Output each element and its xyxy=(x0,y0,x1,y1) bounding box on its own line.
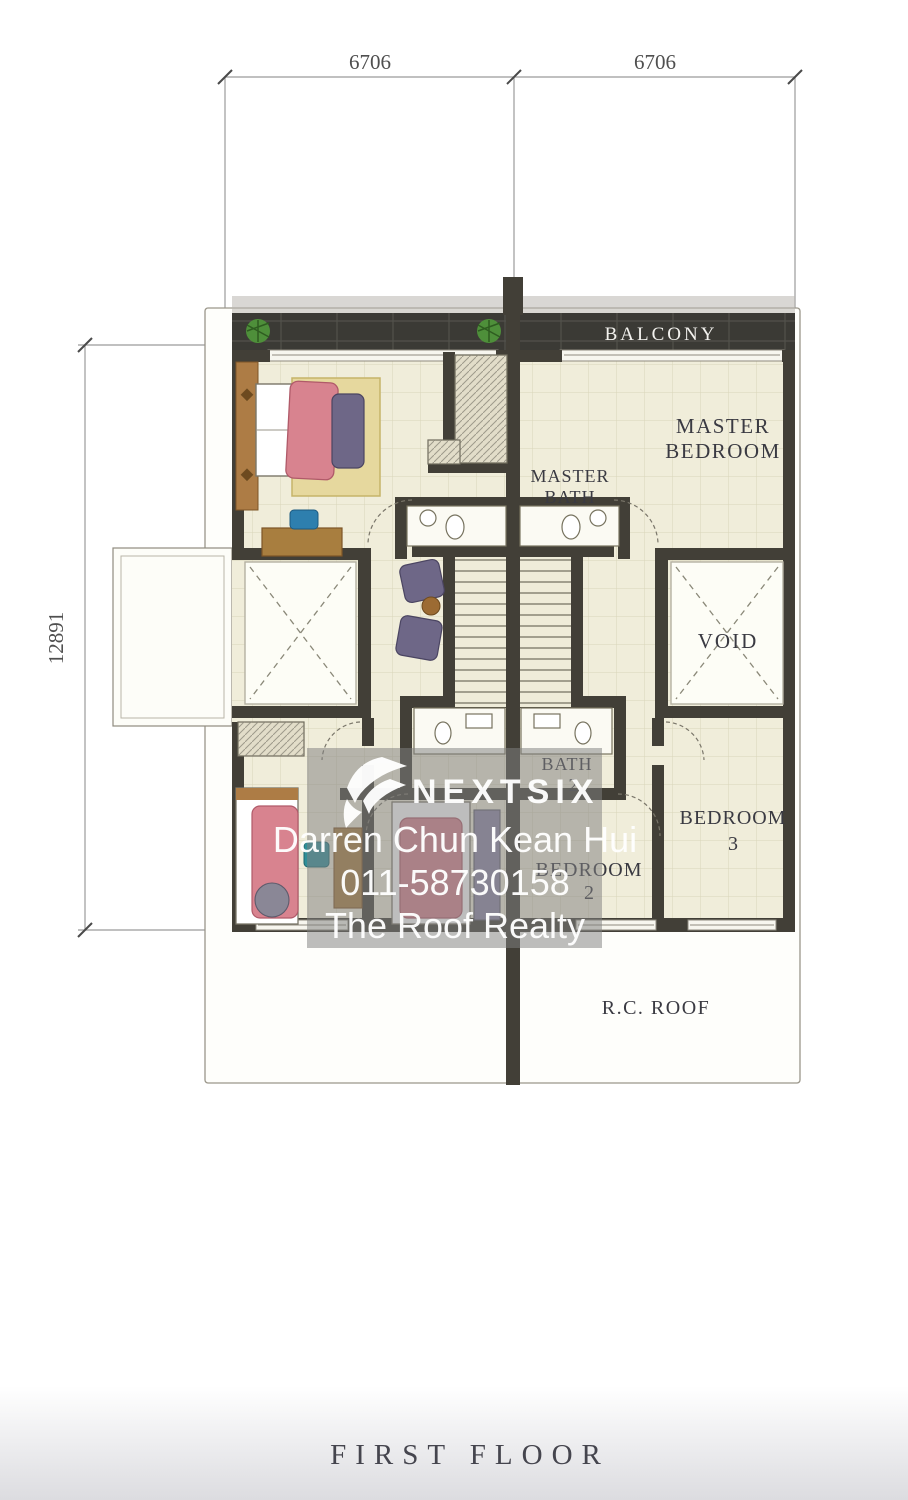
master-bath-label-line2: BATH xyxy=(544,487,595,507)
balcony-label: BALCONY xyxy=(605,324,718,345)
headboard xyxy=(236,362,258,510)
plan-title: FIRST FLOOR xyxy=(330,1439,610,1471)
master-bedroom-label-line1: MASTER xyxy=(676,414,770,438)
void-label: VOID xyxy=(698,629,759,653)
dim-top-left-label: 6706 xyxy=(349,50,391,74)
rc-roof-label: R.C. ROOF xyxy=(602,997,711,1019)
watermark-overlay: NEXTSIX Darren Chun Kean Hui 011-5873015… xyxy=(273,748,637,948)
dim-top-right-label: 6706 xyxy=(634,50,676,74)
master-bath-label-line1: MASTER xyxy=(530,466,609,486)
party-wall xyxy=(503,277,523,315)
master-bedroom-label-line2: BEDROOM xyxy=(665,439,781,463)
floorplan-page: 6706 6706 12891 BALCONY xyxy=(0,0,908,1500)
agency-name: The Roof Realty xyxy=(325,905,585,946)
brand-name: NEXTSIX xyxy=(412,773,599,811)
potted-plant-icon xyxy=(477,319,501,343)
desk xyxy=(262,528,342,556)
floor-plan-svg: 6706 6706 12891 BALCONY xyxy=(0,0,908,1500)
side-planter-box xyxy=(113,548,232,726)
bedroom3-label-line2: 3 xyxy=(728,833,738,855)
bedroom3-label-line1: BEDROOM xyxy=(679,807,786,829)
desk-chair xyxy=(290,510,318,529)
potted-plant-icon xyxy=(246,319,270,343)
dim-side-label: 12891 xyxy=(44,612,68,665)
bed-duvet xyxy=(285,381,338,480)
agent-name: Darren Chun Kean Hui xyxy=(273,819,637,860)
void-left xyxy=(245,562,356,704)
pouf xyxy=(255,883,289,917)
bedroom-sofa xyxy=(332,394,364,468)
agent-phone: 011-58730158 xyxy=(340,862,570,903)
